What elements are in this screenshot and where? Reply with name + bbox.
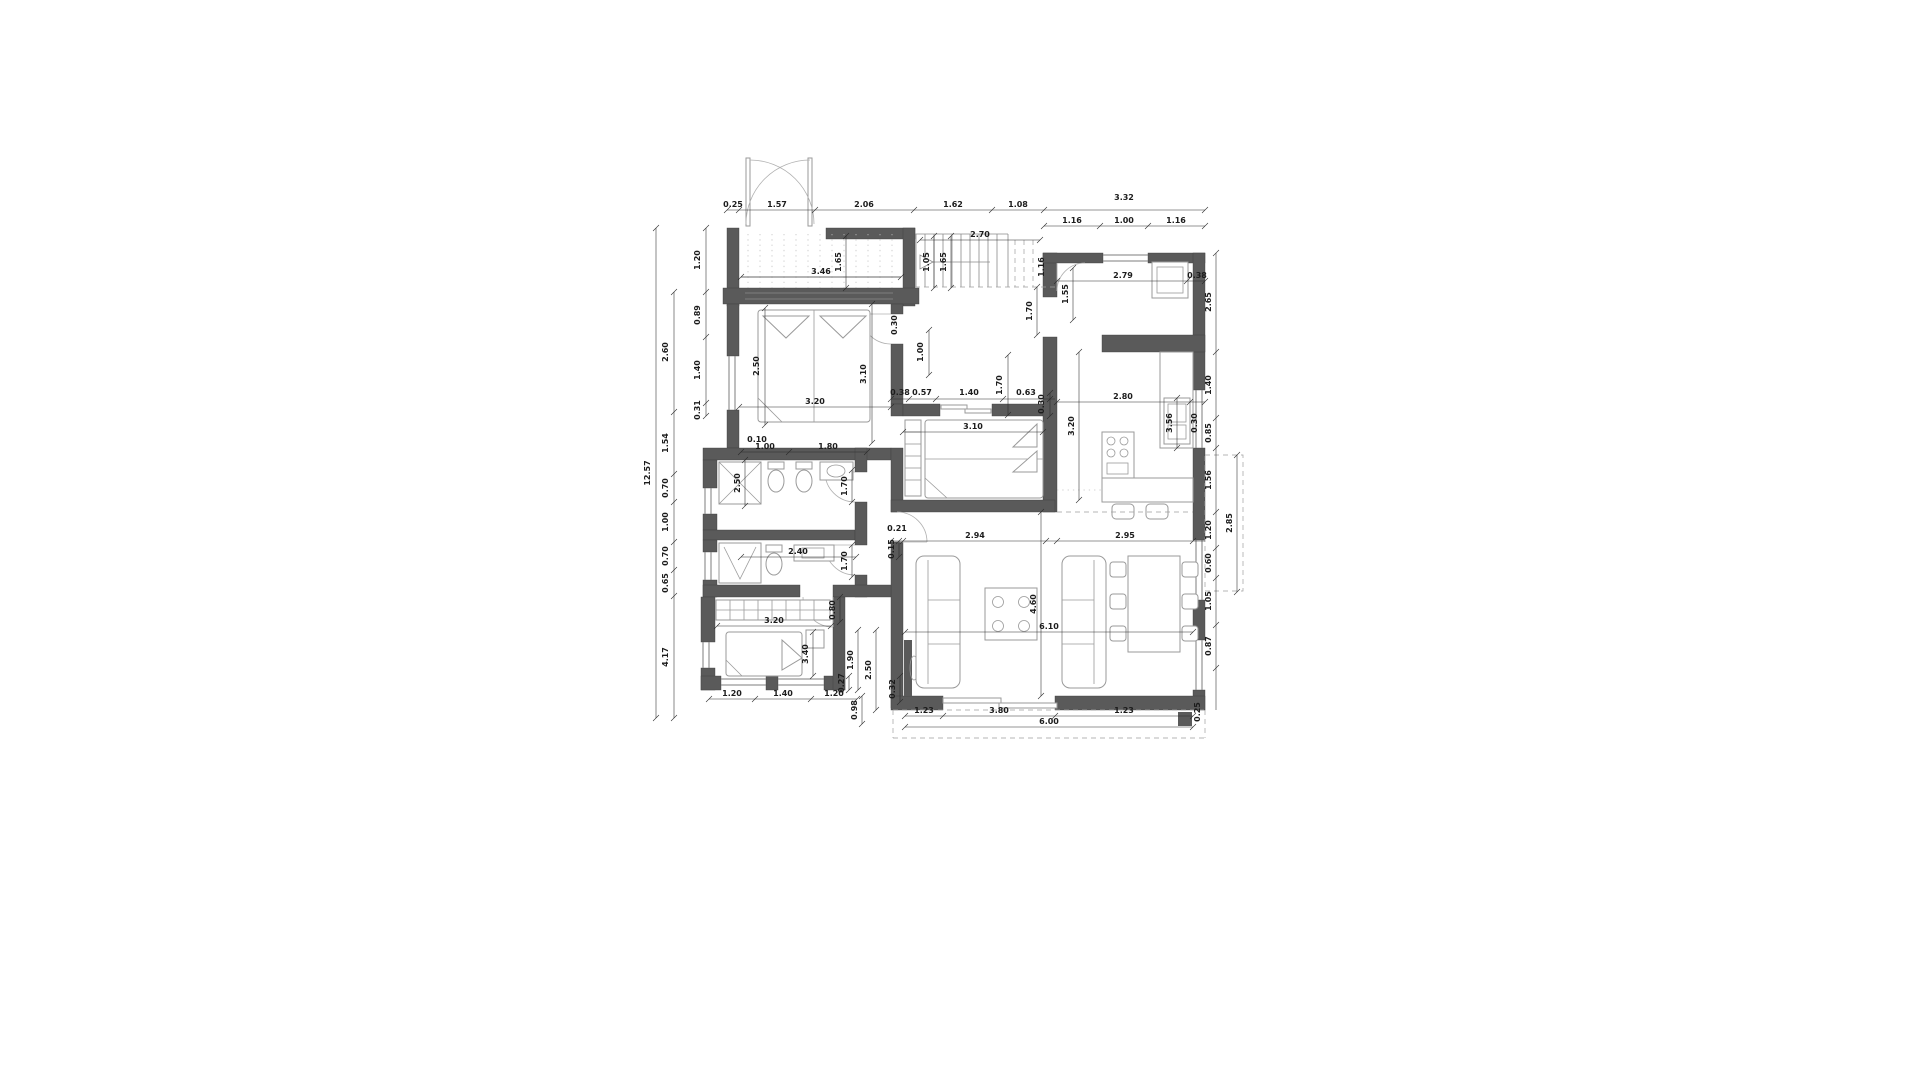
dim-label: 1.20 (824, 689, 844, 698)
porch-deck (741, 234, 901, 288)
dim-label: 4.17 (661, 647, 670, 667)
dim-label: 1.20 (1204, 520, 1213, 540)
chair (1110, 562, 1126, 577)
dim-label: 1.20 (693, 250, 702, 270)
sofa (1062, 556, 1106, 688)
dim-label: 2.50 (864, 660, 873, 680)
dim-label: 2.95 (1115, 531, 1135, 540)
dim-label: 0.15 (887, 539, 896, 559)
dim-label: 0.80 (828, 600, 837, 620)
dim-label: 1.40 (959, 388, 979, 397)
dim-label: 3.46 (811, 267, 831, 276)
dim-label: 0.25 (723, 200, 743, 209)
dim-label: 1.65 (939, 252, 948, 272)
dim-label: 0.57 (912, 388, 932, 397)
dim-label: 0.38 (890, 388, 910, 397)
kitchen-furniture (1057, 262, 1193, 519)
dining-table (1128, 556, 1180, 652)
dim-label: 1.70 (1025, 301, 1034, 321)
dim-label: 2.79 (1113, 271, 1133, 280)
chair (1182, 562, 1198, 577)
floor-plan-page: 0.251.572.061.621.083.321.161.001.162.70… (0, 0, 1920, 1080)
dim-label: 1.70 (995, 375, 1004, 395)
dim-label: 1.05 (1204, 591, 1213, 611)
dim-label: 0.38 (1187, 271, 1207, 280)
chair (1182, 626, 1198, 641)
dim-label: 0.60 (1204, 553, 1213, 573)
stool (1112, 504, 1134, 519)
dim-label: 1.55 (1061, 284, 1070, 304)
stool (1146, 504, 1168, 519)
dim-label: 2.40 (788, 547, 808, 556)
dim-label: 1.40 (1204, 375, 1213, 395)
dim-label: 2.65 (1204, 292, 1213, 312)
dim-label: 0.25 (1193, 702, 1202, 722)
dim-label: 3.10 (859, 364, 868, 384)
entry-door-arc (746, 160, 810, 224)
dim-label: 1.90 (846, 650, 855, 670)
dim-label: 0.30 (890, 315, 899, 335)
bidet (796, 470, 812, 492)
entry-door-arc (750, 160, 814, 224)
dim-label: 0.87 (1204, 636, 1213, 656)
dim-label: 6.10 (1039, 622, 1059, 631)
dim-label: 3.20 (1067, 416, 1076, 436)
closet (905, 420, 921, 496)
kitchen-island (1102, 478, 1193, 502)
dim-label: 1.05 (922, 252, 931, 272)
dim-label: 0.31 (693, 400, 702, 420)
dim-label: 2.50 (752, 356, 761, 376)
dim-label: 1.80 (818, 442, 838, 451)
dim-label: 3.20 (805, 397, 825, 406)
dim-label: 1.40 (773, 689, 793, 698)
dim-label: 1.40 (693, 360, 702, 380)
dim-label: 0.63 (1016, 388, 1036, 397)
dim-label: 6.00 (1039, 717, 1059, 726)
dim-label: 3.32 (1114, 193, 1134, 202)
floor-plan-canvas: 0.251.572.061.621.083.321.161.001.162.70… (0, 0, 1920, 1080)
dim-label: 1.08 (1008, 200, 1028, 209)
dim-label: 1.16 (1166, 216, 1186, 225)
dim-label: 3.56 (1165, 413, 1174, 433)
dim-label: 1.16 (1037, 257, 1046, 277)
dim-label: 0.21 (887, 524, 907, 533)
dim-label: 0.89 (693, 305, 702, 325)
dim-label: 1.00 (661, 512, 670, 532)
bidet-back (796, 462, 812, 469)
dim-label: 1.70 (840, 551, 849, 571)
toilet-tank (768, 462, 784, 469)
dim-label: 1.54 (661, 433, 670, 453)
dim-label: 1.16 (1062, 216, 1082, 225)
dim-label: 3.40 (801, 644, 810, 664)
dim-label: 1.00 (916, 342, 925, 362)
chair (1110, 626, 1126, 641)
dim-label: 1.00 (1114, 216, 1134, 225)
dim-label: 3.20 (764, 616, 784, 625)
chair (1182, 594, 1198, 609)
dim-label: 0.32 (888, 679, 897, 699)
closet-sliding-panel (941, 405, 967, 409)
dim-label: 0.98 (850, 700, 859, 720)
dim-label: 1.23 (1114, 706, 1134, 715)
dim-label: 2.70 (970, 230, 990, 239)
dim-label: 2.06 (854, 200, 874, 209)
dim-label: 2.85 (1225, 513, 1234, 533)
dim-label: 0.70 (661, 546, 670, 566)
dim-label: 0.85 (1204, 423, 1213, 443)
toilet-tank (766, 545, 782, 552)
toilet (768, 470, 784, 492)
sliding-door-panel (943, 698, 1001, 703)
dim-label: 0.30 (1037, 394, 1046, 414)
chair (1110, 594, 1126, 609)
entry-door-leaf (808, 158, 812, 226)
dim-label: 1.23 (914, 706, 934, 715)
toilet (766, 553, 782, 575)
terrace-column (1178, 712, 1192, 726)
dim-label: 1.65 (834, 252, 843, 272)
closet-sliding-panel (965, 409, 991, 413)
dim-label: 2.80 (1113, 392, 1133, 401)
sofa (916, 556, 960, 688)
dim-label: 1.70 (840, 476, 849, 496)
dim-label: 1.00 (755, 442, 775, 451)
dim-label: 1.62 (943, 200, 963, 209)
bathroom2-fixtures (719, 543, 834, 583)
dim-label: 3.10 (963, 422, 983, 431)
dim-label: 1.20 (722, 689, 742, 698)
tv (904, 640, 912, 696)
dim-label: 4.60 (1029, 594, 1038, 614)
dim-label: 0.30 (1190, 413, 1199, 433)
dim-label: 2.60 (661, 342, 670, 362)
dim-label: 3.80 (989, 706, 1009, 715)
dim-label: 0.70 (661, 478, 670, 498)
dim-label: 2.94 (965, 531, 985, 540)
dim-label: 12.57 (643, 460, 652, 485)
exterior-stair (915, 234, 1057, 287)
dim-label: 2.50 (733, 473, 742, 493)
dim-label: 1.57 (767, 200, 787, 209)
bedroom2-furniture (905, 420, 1043, 498)
dim-label: 0.65 (661, 573, 670, 593)
dim-label: 1.56 (1204, 470, 1213, 490)
